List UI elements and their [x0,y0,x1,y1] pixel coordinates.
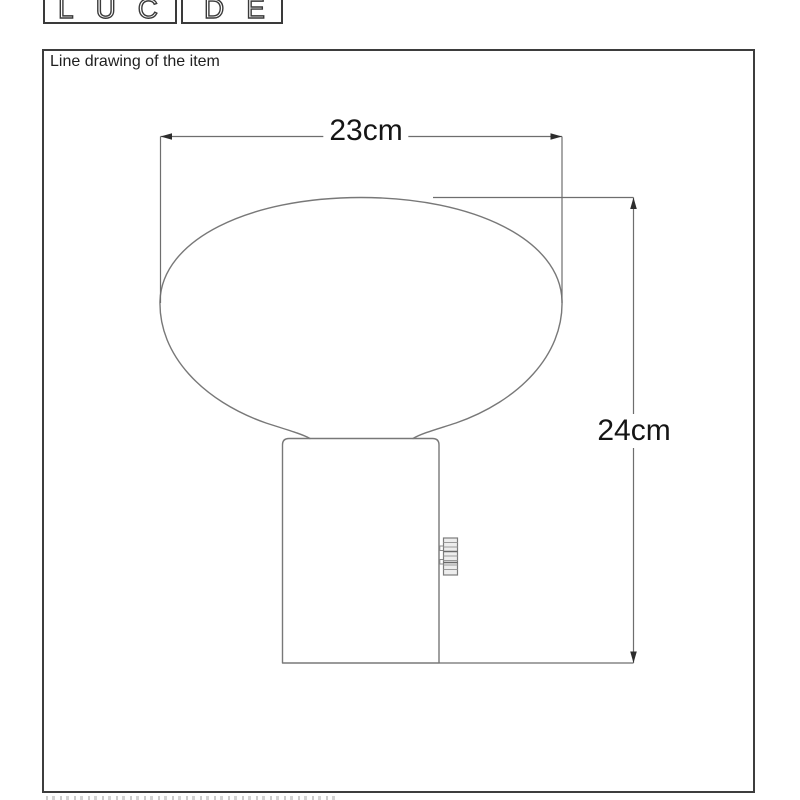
width-arrow-left [161,133,173,140]
clipped-bottom-text [46,796,338,800]
height-arrow-bottom [630,652,637,664]
width-dimension-label: 23cm [323,114,408,148]
width-dimension [161,137,563,304]
lampshade-outline [160,198,562,439]
panel-title: Line drawing of the item [50,52,220,72]
height-dimension-label: 24cm [591,414,676,448]
lamp-switch-knob [440,538,458,575]
lamp-base [283,439,440,664]
height-arrow-top [630,198,637,210]
width-arrow-right [551,133,563,140]
